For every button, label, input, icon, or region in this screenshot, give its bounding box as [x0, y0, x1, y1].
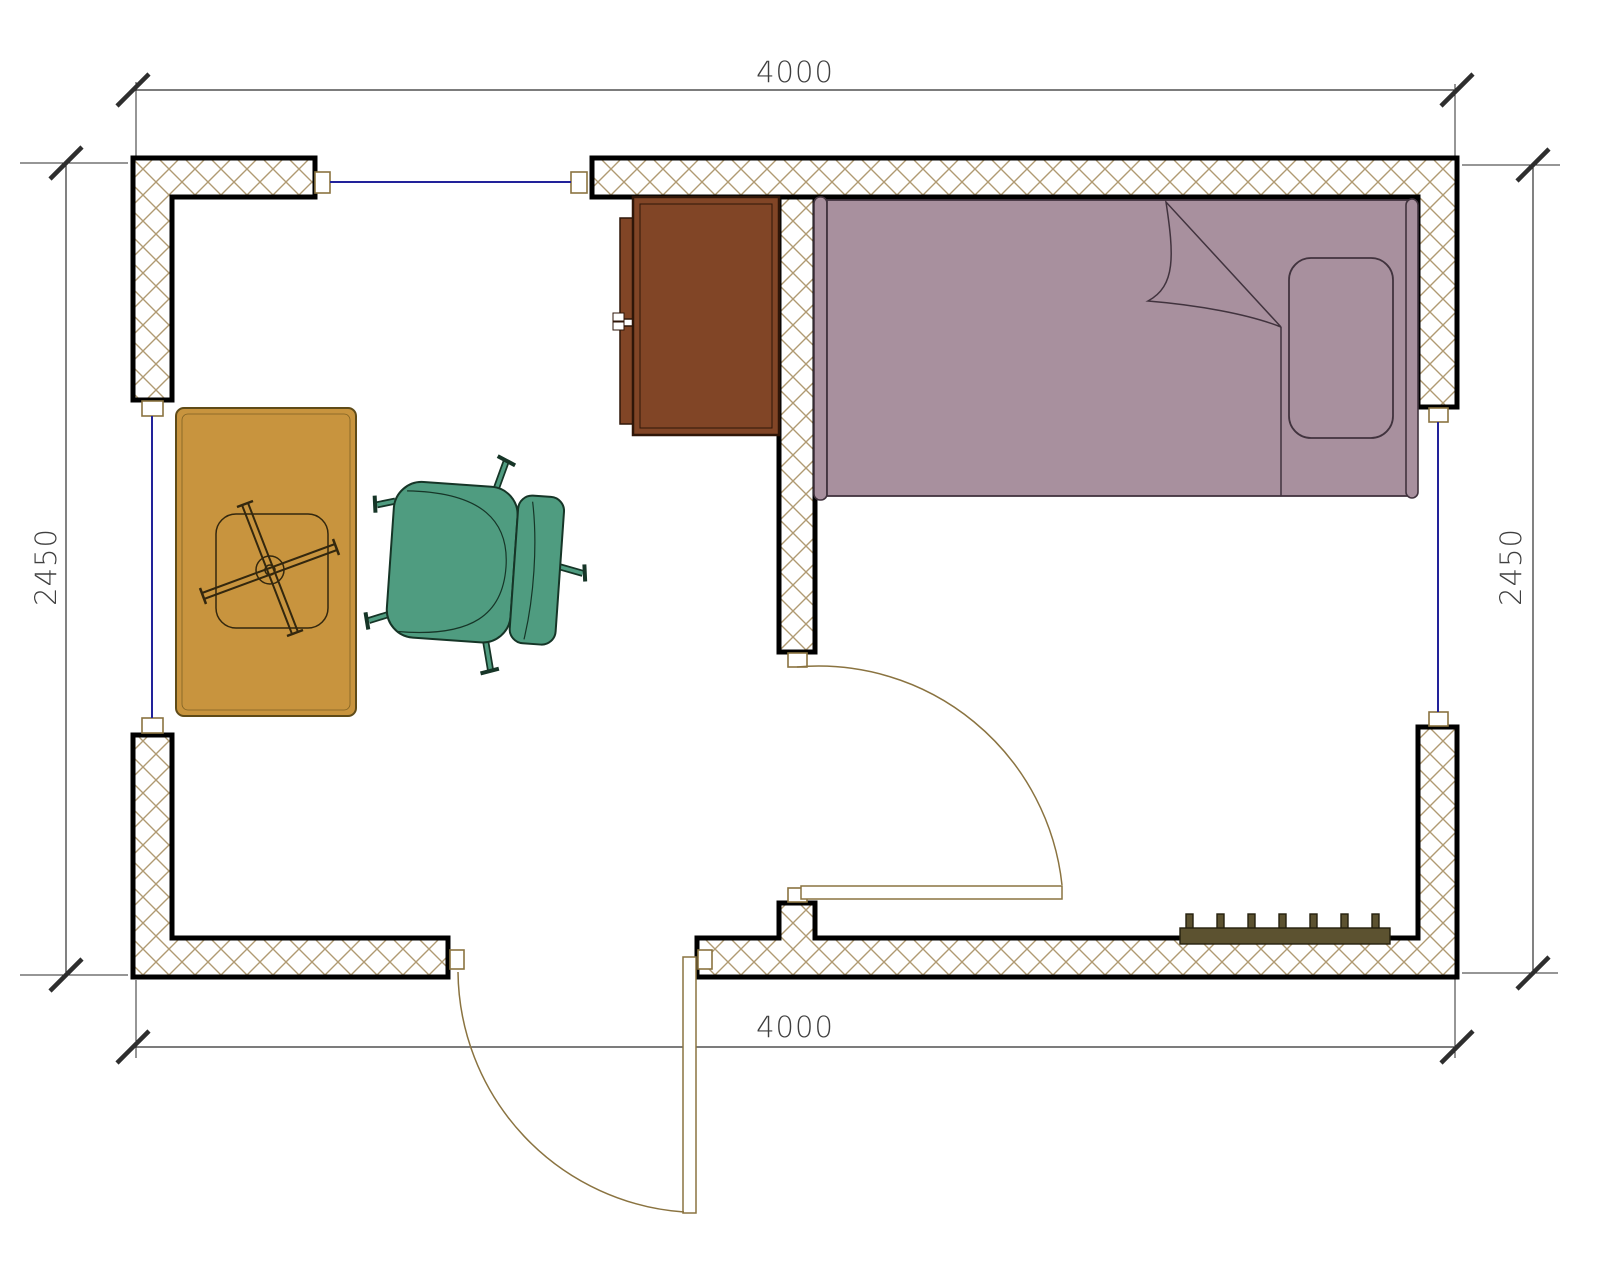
door-leaf[interactable] — [683, 957, 696, 1213]
frame-marker — [1429, 408, 1448, 422]
frame-marker — [142, 401, 163, 416]
wardrobe-handle — [613, 322, 624, 330]
door-interior[interactable] — [797, 666, 1062, 899]
chair-backrest — [509, 495, 565, 646]
wall-bottom-left — [133, 735, 448, 977]
frame-marker — [571, 172, 587, 193]
table[interactable] — [176, 408, 356, 716]
frame-marker — [142, 718, 163, 733]
radiator[interactable] — [1180, 914, 1390, 944]
frame-marker — [698, 950, 712, 969]
dimension-label-right: 2450 — [1496, 487, 1528, 647]
wardrobe[interactable] — [613, 197, 779, 435]
chair-seat[interactable] — [385, 480, 520, 644]
wardrobe-body[interactable] — [633, 197, 779, 435]
wardrobe-door — [620, 326, 633, 424]
door-leaf[interactable] — [801, 886, 1062, 899]
wardrobe-door — [620, 218, 633, 319]
floor-plan-canvas — [0, 0, 1600, 1280]
door-exterior[interactable] — [458, 957, 696, 1213]
door-swing-arc — [458, 972, 684, 1212]
wall-interior-partition — [779, 197, 815, 652]
floor-plan-page: 4000 4000 2450 2450 — [0, 0, 1600, 1280]
wall-top-left — [133, 158, 315, 400]
dimension-label-top: 4000 — [715, 57, 875, 89]
bed[interactable] — [814, 197, 1418, 500]
office-chair[interactable] — [362, 448, 594, 681]
bed-pillow — [1289, 258, 1393, 438]
wardrobe-handle — [613, 313, 624, 321]
table-top[interactable] — [176, 408, 356, 716]
bed-footboard — [814, 197, 827, 500]
door-swing-arc — [797, 666, 1062, 885]
radiator-body[interactable] — [1180, 928, 1390, 944]
dimension-label-left: 2450 — [31, 487, 63, 647]
frame-marker — [450, 950, 464, 969]
frame-marker — [1429, 712, 1448, 726]
frame-marker — [788, 653, 807, 667]
dimension-label-bottom: 4000 — [715, 1012, 875, 1044]
bed-headboard — [1406, 199, 1418, 498]
frame-marker — [315, 172, 330, 193]
